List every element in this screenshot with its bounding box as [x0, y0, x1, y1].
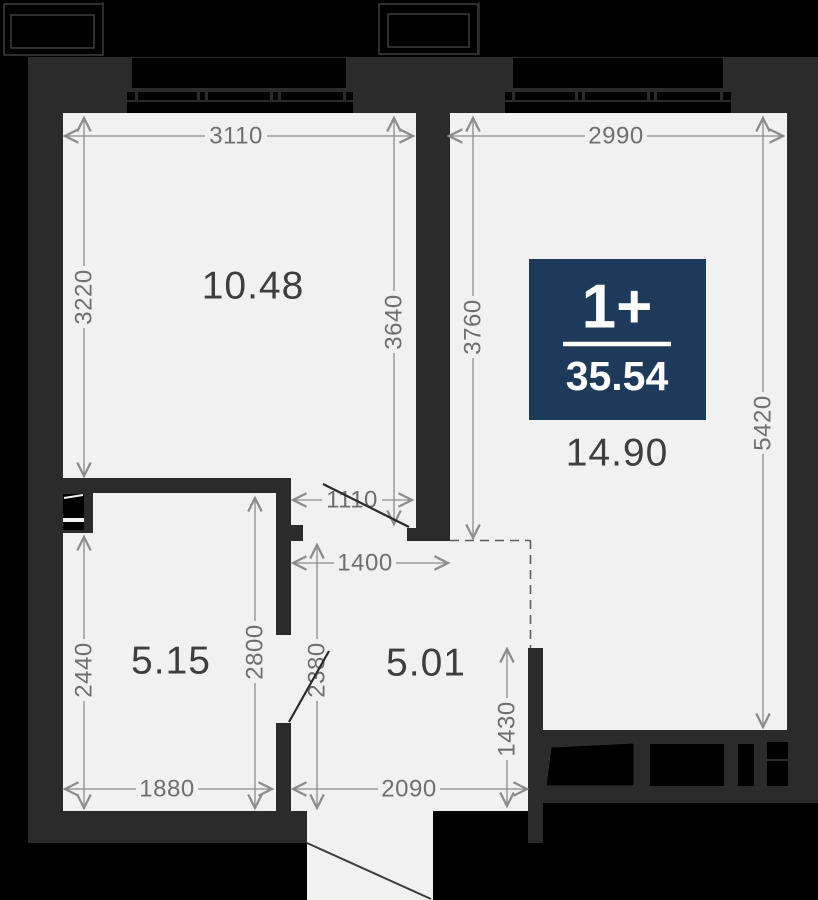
outside-bottom-left — [0, 843, 307, 900]
duct-upper-icon — [767, 742, 788, 759]
svg-text:3640: 3640 — [381, 294, 408, 349]
outside-left — [0, 57, 28, 843]
svg-text:1430: 1430 — [494, 701, 521, 756]
unit-info-badge: 1+ 35.54 — [529, 259, 706, 420]
svg-text:2090: 2090 — [381, 776, 436, 803]
wall-foot — [407, 528, 450, 541]
wall-notch — [291, 525, 303, 541]
svg-text:1400: 1400 — [337, 550, 392, 577]
svg-text:2440: 2440 — [71, 642, 98, 697]
wall-bath-lower — [276, 723, 291, 811]
wall-between-rooms — [416, 113, 450, 528]
svg-text:1880: 1880 — [139, 776, 194, 803]
bathroom-area-label: 5.15 — [131, 640, 211, 683]
wall-bottom — [28, 811, 307, 843]
wall-right — [787, 113, 818, 803]
wall-bath-upper — [276, 493, 291, 635]
svg-text:3760: 3760 — [460, 299, 487, 354]
badge-total-area: 35.54 — [566, 353, 669, 399]
svg-text:3220: 3220 — [71, 269, 98, 324]
badge-rooms-count: 1+ — [582, 273, 653, 342]
wall-left — [28, 113, 63, 811]
floor-plan: 3110 2990 3220 3640 3760 5420 — [0, 0, 818, 900]
duct-lower-icon — [767, 761, 788, 786]
window-bedroom-icon — [505, 58, 731, 113]
hallway-area-label: 5.01 — [386, 642, 466, 685]
living-area-label: 10.48 — [202, 265, 305, 308]
svg-text:2990: 2990 — [588, 123, 643, 150]
facade-band — [0, 0, 818, 57]
floor-plan-page: 3110 2990 3220 3640 3760 5420 — [0, 0, 818, 900]
corridor-door-icon — [650, 744, 724, 786]
corridor-doors — [546, 742, 788, 786]
shaft-icon — [738, 744, 754, 786]
bedroom-area-label: 14.90 — [566, 432, 669, 475]
wall-living-bath — [28, 478, 291, 493]
window-living-icon — [127, 58, 353, 113]
svg-text:2800: 2800 — [242, 624, 269, 679]
neighbor-door-icon — [546, 743, 634, 786]
boiler-icon — [63, 494, 84, 530]
svg-text:3110: 3110 — [209, 123, 263, 150]
svg-text:5420: 5420 — [750, 395, 777, 450]
outside-bottom-right — [433, 803, 818, 900]
